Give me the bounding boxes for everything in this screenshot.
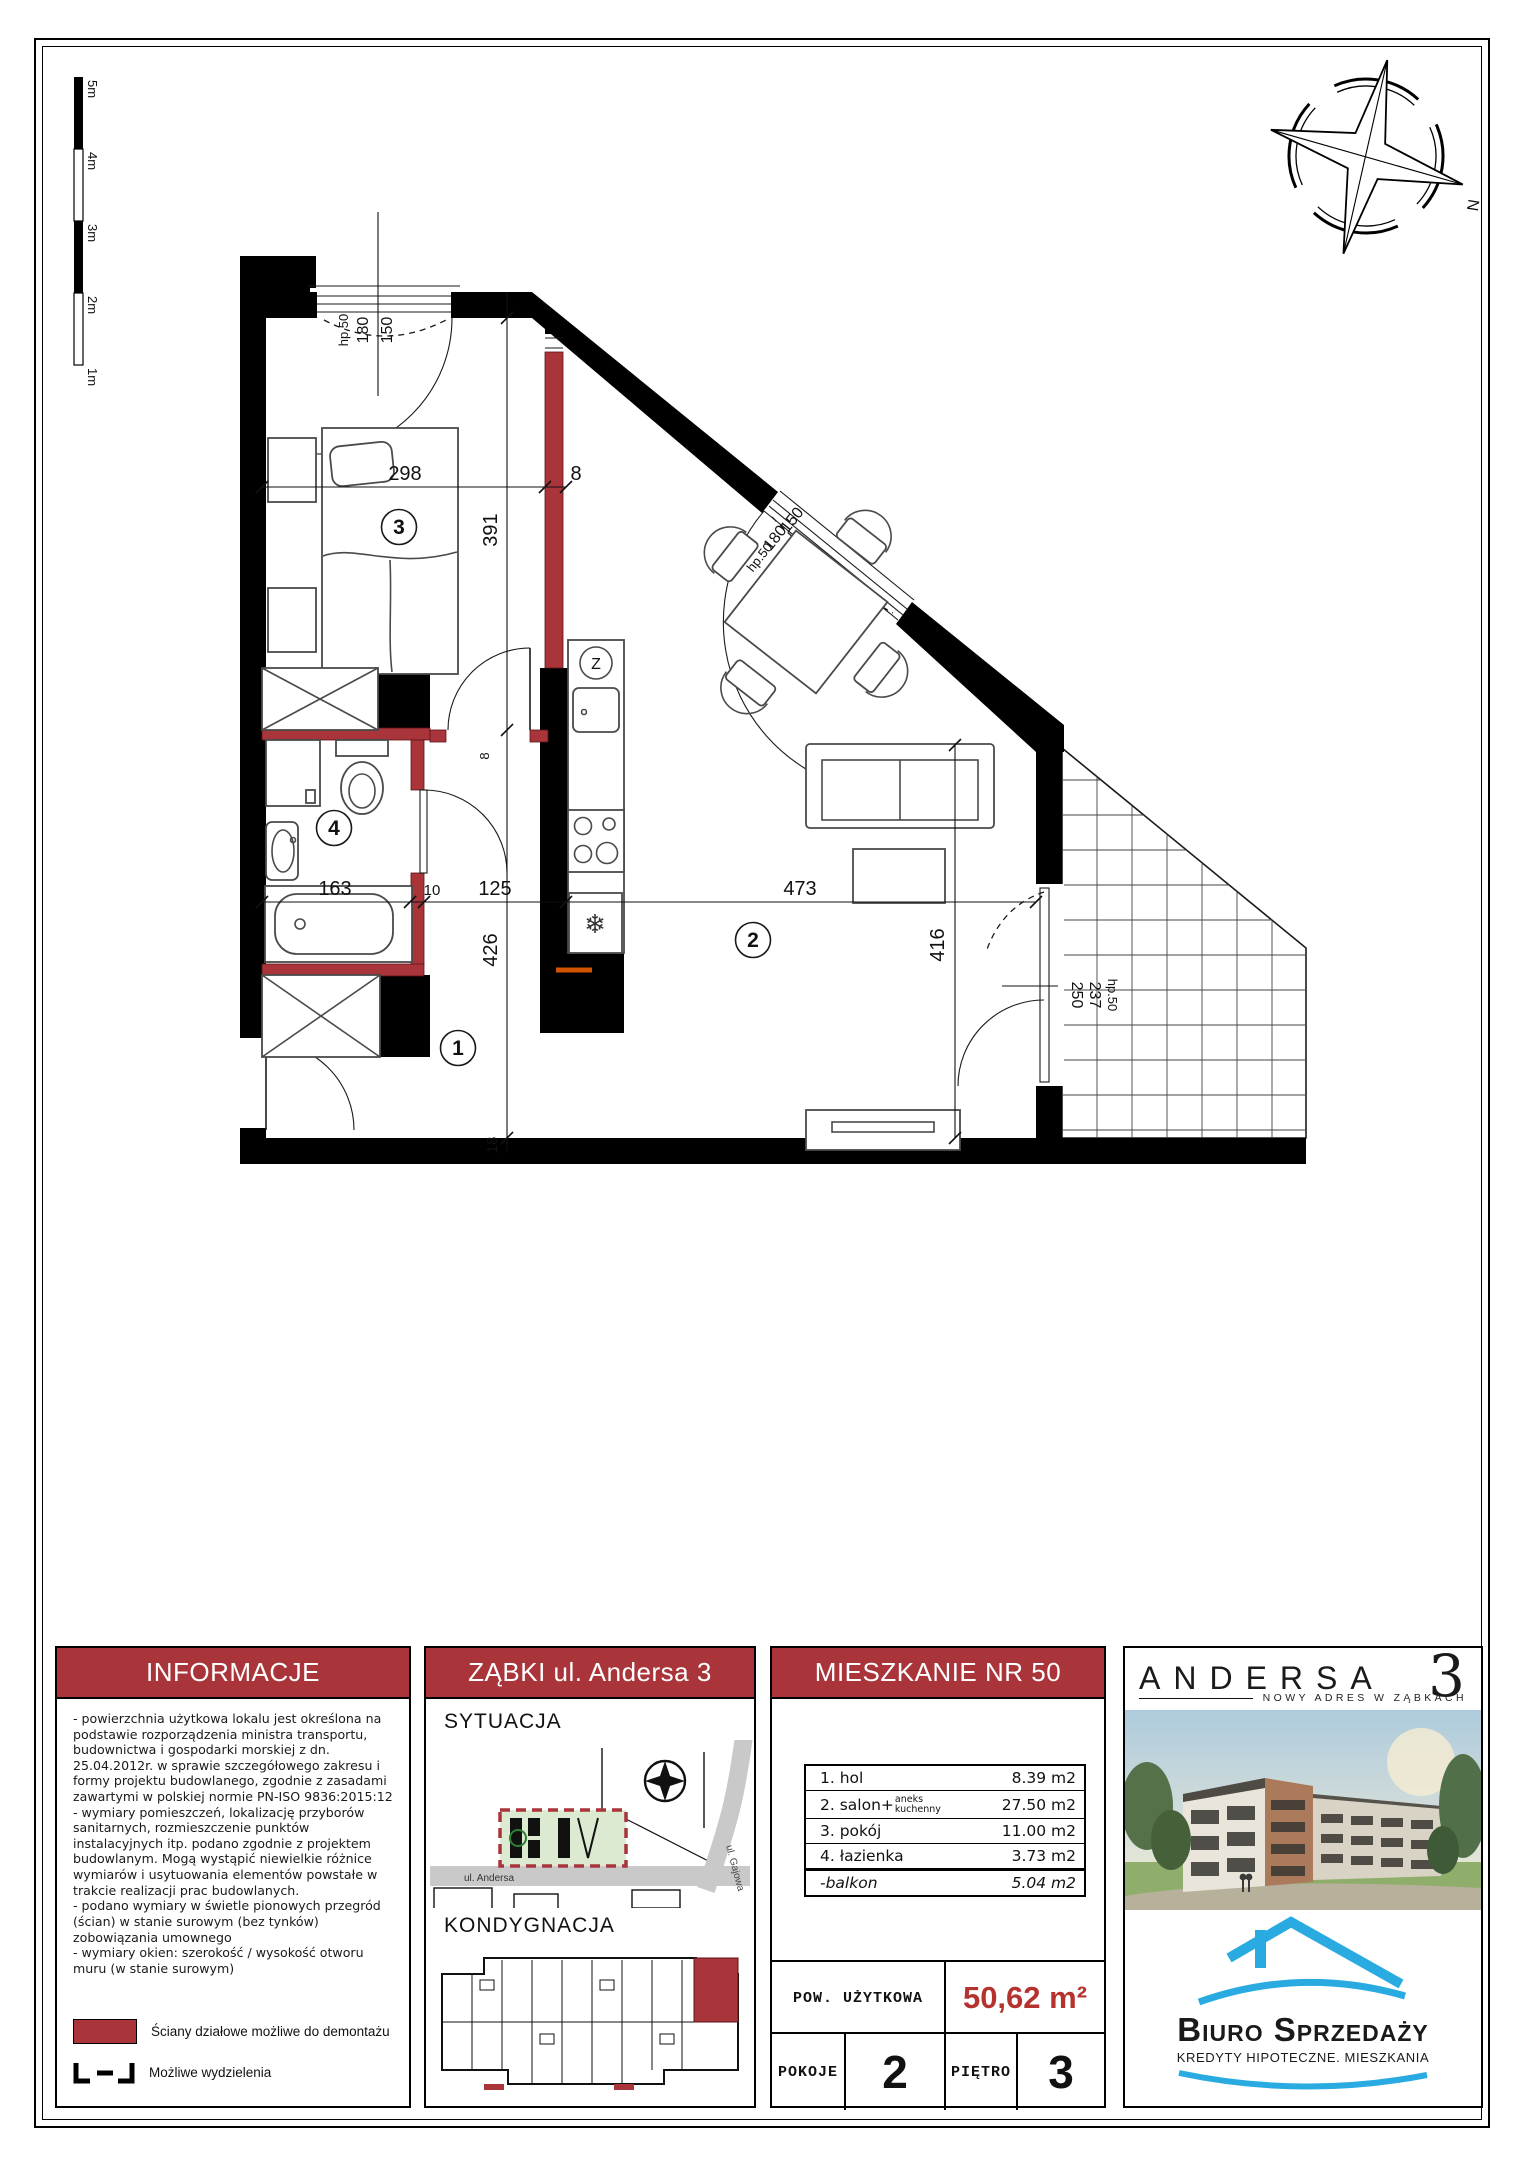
dim-wall: 10 — [424, 882, 441, 899]
window-sill-label: hp.50 — [336, 314, 351, 347]
room-area: 3.73 m2 — [1012, 1847, 1076, 1865]
scale-label: 2m — [85, 296, 100, 314]
brand-header: ANDERSA 3 NOWY ADRES W ZĄBKACH — [1125, 1648, 1481, 1708]
room-name: -balkon — [820, 1874, 878, 1892]
dim-wall: 8 — [570, 463, 581, 485]
scale-label: 3m — [85, 224, 100, 242]
map-compass-icon — [645, 1761, 685, 1801]
panel-mieszkanie: MIESZKANIE NR 50 1. hol 8.39 m2 2. salon… — [770, 1646, 1106, 2108]
pietro-label: PIĘTRO — [946, 2034, 1018, 2110]
dim-hall-width: 125 — [478, 878, 511, 900]
balcony — [1060, 740, 1306, 1140]
pokoje-label: POKOJE — [772, 2034, 846, 2110]
panel-informacje: INFORMACJE - powierzchnia użytkowa lokal… — [55, 1646, 411, 2108]
brand-tagline: NOWY ADRES W ZĄBKACH — [1139, 1692, 1467, 1704]
dim-bath-width: 163 — [318, 878, 351, 900]
panel-andersa: ANDERSA 3 NOWY ADRES W ZĄBKACH — [1123, 1646, 1483, 2108]
bathroom-fixtures — [265, 740, 412, 962]
hall-wardrobe — [262, 975, 380, 1057]
tagline-rule — [1139, 1698, 1253, 1699]
scale-bar: 5m 4m 3m 2m 1m — [74, 77, 100, 386]
room-name: 1. hol — [820, 1769, 863, 1787]
room-name-suffix: aneks kuchenny — [895, 1795, 941, 1814]
biuro-sprzedazy-logo: Biuro Sprzedaży KREDYTY HIPOTECZNE. MIES… — [1125, 1910, 1481, 2106]
informacje-text: - powierzchnia użytkowa lokalu jest okre… — [57, 1699, 409, 1976]
project-building — [500, 1810, 626, 1866]
floorplan-sheet: { "plan": { "rooms": {"hol":"1","salon":… — [0, 0, 1526, 2160]
room-number-pokoj: 3 — [393, 516, 405, 539]
highlighted-unit — [694, 1958, 738, 2022]
partition-bracket-icon — [73, 2060, 135, 2084]
red-wall-swatch — [73, 2019, 137, 2044]
biuro-name: Biuro Sprzedaży — [1125, 2013, 1481, 2046]
scale-label: 1m — [85, 368, 100, 386]
street-andersa-label: ul. Andersa — [464, 1873, 514, 1884]
room-area: 8.39 m2 — [1012, 1769, 1076, 1787]
table-row-balkon: -balkon 5.04 m2 — [806, 1868, 1084, 1895]
plan-legend: Ściany działowe możliwe do demontażu Moż… — [73, 2003, 399, 2084]
window-width-label: 150 — [379, 317, 396, 344]
dim-salon-depth: 416 — [927, 928, 949, 961]
bathroom-door — [420, 790, 507, 873]
panel-mieszkanie-title: MIESZKANIE NR 50 — [772, 1648, 1104, 1699]
panel-informacje-title: INFORMACJE — [57, 1648, 409, 1699]
compass-north-label: N — [1463, 198, 1482, 212]
dim-wall: 18 — [484, 1137, 501, 1154]
biuro-subtitle: KREDYTY HIPOTECZNE. MIESZKANIA — [1125, 2050, 1481, 2065]
dim-bedroom-depth: 391 — [480, 513, 502, 546]
bedroom-door: 8 — [448, 648, 530, 760]
table-row: 3. pokój 11.00 m2 — [806, 1818, 1084, 1843]
balcony-window-width: 250 — [1068, 982, 1085, 1009]
dim-hall-depth: 426 — [480, 933, 502, 966]
scale-label: 4m — [85, 152, 100, 170]
building-render-photo — [1125, 1710, 1481, 1910]
dim-bedroom-width: 298 — [388, 463, 421, 485]
room-number-salon: 2 — [747, 929, 759, 952]
informacje-paragraph: - wymiary okien: szerokość / wysokość ot… — [73, 1945, 395, 1976]
balcony-window-height: 237 — [1086, 982, 1103, 1009]
legend-item-possible-partitions: Możliwe wydzielenia — [73, 2060, 399, 2084]
kondygnacja-heading: KONDYGNACJA — [444, 1914, 615, 1938]
legend-item-demolishable-walls: Ściany działowe możliwe do demontażu — [73, 2019, 399, 2044]
compass-rose: N — [1254, 44, 1501, 274]
informacje-paragraph: - wymiary pomieszczeń, lokalizację przyb… — [73, 1805, 395, 1899]
legend-label: Możliwe wydzielenia — [149, 2065, 271, 2080]
scale-label: 5m — [85, 80, 100, 98]
legend-label: Ściany działowe możliwe do demontażu — [151, 2024, 390, 2039]
room-number-lazienka: 4 — [328, 817, 340, 840]
pokoje-value: 2 — [846, 2034, 946, 2110]
roof-icon — [1193, 1916, 1413, 2008]
room-name: 3. pokój — [820, 1822, 881, 1840]
room-area: 27.50 m2 — [1002, 1796, 1076, 1814]
pow-uzytkowa-value: 50,62 m² — [946, 1962, 1104, 2034]
room-area-table: 1. hol 8.39 m2 2. salon+ aneks kuchenny … — [804, 1764, 1086, 1897]
door-dim: 8 — [477, 752, 492, 759]
storey-plan — [426, 1946, 754, 2106]
table-row: 1. hol 8.39 m2 — [806, 1766, 1084, 1790]
room-number-hol: 1 — [452, 1037, 464, 1060]
situation-map: ul. Andersa ul. Gajowa — [426, 1740, 754, 1908]
informacje-paragraph: zobowiązania umownego — [73, 1930, 395, 1946]
kitchen-units: Z ❄ — [568, 640, 624, 953]
table-row: 2. salon+ aneks kuchenny 27.50 m2 — [806, 1790, 1084, 1818]
pow-uzytkowa-label: POW. UŻYTKOWA — [772, 1962, 946, 2034]
room-area: 11.00 m2 — [1002, 1822, 1076, 1840]
informacje-paragraph: - podano wymiary w świetle pionowych prz… — [73, 1898, 395, 1929]
informacje-paragraph: - powierzchnia użytkowa lokalu jest okre… — [73, 1711, 395, 1805]
dining-set — [635, 441, 977, 783]
room-area: 5.04 m2 — [1012, 1874, 1076, 1892]
sytuacja-heading: SYTUACJA — [444, 1710, 562, 1734]
panel-lokalizacja: ZĄBKI ul. Andersa 3 SYTUACJA ul. Andersa… — [424, 1646, 756, 2108]
panel-lokalizacja-title: ZĄBKI ul. Andersa 3 — [426, 1648, 754, 1699]
fridge-snowflake-icon: ❄ — [584, 909, 606, 939]
floor-plan: 5m 4m 3m 2m 1m N — [0, 0, 1526, 1646]
kitchen-sink-symbol: Z — [591, 656, 601, 673]
usable-area-row: POW. UŻYTKOWA 50,62 m² — [772, 1960, 1104, 2034]
window-height-label: 180 — [355, 317, 372, 344]
rooms-floor-row: POKOJE 2 PIĘTRO 3 — [772, 2032, 1104, 2110]
table-row: 4. łazienka 3.73 m2 — [806, 1843, 1084, 1868]
salon-furniture — [806, 744, 994, 1150]
balcony-window-sill: hp.50 — [1105, 979, 1120, 1012]
pietro-value: 3 — [1018, 2034, 1104, 2110]
bedroom-window: hp.50 180 150 — [308, 212, 460, 454]
tagline-text: NOWY ADRES W ZĄBKACH — [1263, 1692, 1467, 1704]
room-name: 4. łazienka — [820, 1847, 904, 1865]
dim-salon-width: 473 — [783, 878, 816, 900]
room-name: 2. salon+ — [820, 1796, 894, 1814]
swoosh-icon — [1173, 2067, 1433, 2095]
